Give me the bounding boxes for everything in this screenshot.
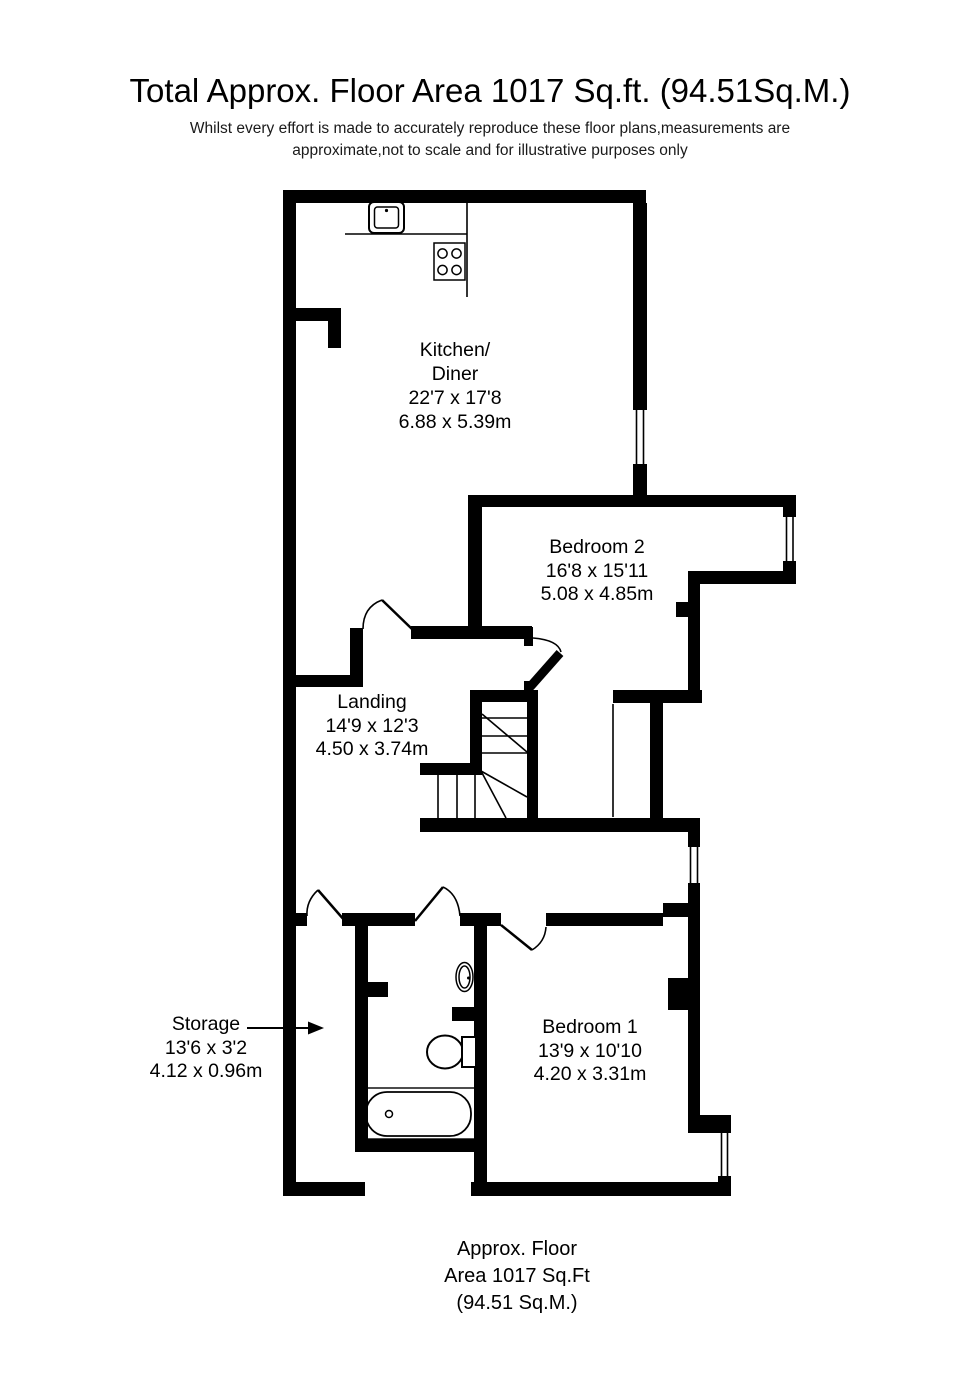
wall-left	[283, 190, 296, 1196]
wall-step-bedroom1-top	[663, 903, 700, 917]
wall-corridor-seg3	[460, 913, 501, 926]
footer-line3: (94.51 Sq.M.)	[444, 1290, 590, 1317]
floorplan-drawing	[0, 0, 980, 1386]
wall-stub-kitchen	[296, 308, 341, 321]
wall-bathroom-bottom	[355, 1139, 487, 1152]
floorplan-page: Total Approx. Floor Area 1017 Sq.ft. (94…	[0, 0, 980, 1386]
wall-pier-bedroom2	[676, 602, 688, 617]
wall-stairs-landing	[420, 763, 482, 775]
window-bedroom1-icon	[722, 1133, 728, 1176]
wall-stairs-left	[470, 702, 482, 767]
room-name: Diner	[399, 362, 512, 386]
room-name: Kitchen/	[399, 338, 512, 362]
basin-icon	[456, 963, 473, 992]
wall-corridor-seg1	[296, 913, 307, 926]
room-label-kitchen: Kitchen/ Diner 22'7 x 17'8 6.88 x 5.39m	[399, 338, 512, 434]
wall-landing-corner	[296, 675, 363, 687]
counter-icon	[345, 203, 467, 297]
wall-east-cap	[688, 832, 700, 847]
wall-landing-top-endcap	[524, 627, 533, 646]
kitchen-fixtures	[345, 202, 467, 297]
room-size-metric: 4.50 x 3.74m	[316, 738, 429, 762]
wall-bedroom2-bottom-right	[688, 571, 796, 584]
room-size-metric: 5.08 x 4.85m	[541, 583, 654, 607]
wall-bedroom1-bottom	[471, 1182, 731, 1196]
room-size-imperial: 13'6 x 3'2	[150, 1037, 263, 1061]
wall-step-bottom-right	[688, 1115, 731, 1133]
wall-bedroom1-right	[688, 987, 700, 1117]
wall-east-mid	[688, 883, 700, 987]
footer-line1: Approx. Floor	[444, 1236, 590, 1263]
room-size-metric: 4.20 x 3.31m	[534, 1063, 647, 1087]
room-name: Bedroom 1	[534, 1016, 647, 1040]
room-size-metric: 4.12 x 0.96m	[150, 1060, 263, 1084]
footer-line2: Area 1017 Sq.Ft	[444, 1263, 590, 1290]
wall-top	[283, 190, 646, 203]
room-size-metric: 6.88 x 5.39m	[399, 410, 512, 434]
stairs-icon	[438, 704, 613, 818]
wall-corridor-seg2	[342, 913, 415, 926]
sink-icon	[369, 202, 404, 233]
wall-landing-top	[411, 626, 532, 639]
wall-stub-kitchen-return	[328, 321, 341, 348]
wall-stairwell-right	[650, 703, 663, 820]
room-size-imperial: 22'7 x 17'8	[399, 386, 512, 410]
door-kitchen-landing-icon	[363, 600, 413, 630]
wall-bedroom2-left	[468, 507, 482, 628]
wall-stub-bathroom-left	[368, 982, 388, 997]
door-leaf-bedroom2	[530, 653, 560, 687]
wall-bedroom2-right-inner	[688, 584, 700, 702]
room-name: Landing	[316, 691, 429, 715]
door-bedroom2-icon	[533, 638, 561, 652]
wall-kitchen-right-upper	[633, 203, 647, 410]
room-name: Storage	[150, 1013, 263, 1037]
wall-stub-bathroom-right	[452, 1007, 475, 1021]
wall-stairs-right	[527, 702, 538, 820]
door-storage-icon	[307, 890, 345, 921]
bathtub-icon	[362, 1088, 476, 1139]
wall-bottom-left	[283, 1182, 365, 1196]
window-kitchen-icon	[637, 410, 644, 464]
room-label-storage: Storage 13'6 x 3'2 4.12 x 0.96m	[150, 1013, 263, 1084]
footer-area-summary: Approx. Floor Area 1017 Sq.Ft (94.51 Sq.…	[444, 1236, 590, 1317]
room-size-imperial: 13'9 x 10'10	[534, 1040, 647, 1064]
wall-pier-bedroom1	[668, 978, 688, 1010]
wall-stairwell-top	[613, 690, 702, 703]
door-bathroom-icon	[415, 887, 460, 921]
window-corridor-icon	[691, 847, 698, 883]
wall-corridor-seg4	[546, 913, 663, 926]
window-bedroom2-icon	[787, 517, 794, 561]
wall-kitchen-right-lower	[633, 464, 647, 495]
room-size-imperial: 14'9 x 12'3	[316, 715, 429, 739]
room-label-bedroom1: Bedroom 1 13'9 x 10'10 4.20 x 3.31m	[534, 1016, 647, 1087]
room-label-bedroom2: Bedroom 2 16'8 x 15'11 5.08 x 4.85m	[541, 536, 654, 607]
wall-landing-left	[350, 628, 363, 675]
room-label-landing: Landing 14'9 x 12'3 4.50 x 3.74m	[316, 691, 429, 762]
toilet-icon	[427, 1036, 476, 1069]
room-size-imperial: 16'8 x 15'11	[541, 560, 654, 584]
wall-bedroom2-top	[468, 495, 796, 507]
hob-icon	[434, 243, 465, 280]
room-name: Bedroom 2	[541, 536, 654, 560]
wall-bedroom2-right-cap-top	[783, 507, 796, 517]
door-bedroom1-icon	[501, 925, 546, 950]
wall-landing-bottom	[420, 818, 700, 832]
